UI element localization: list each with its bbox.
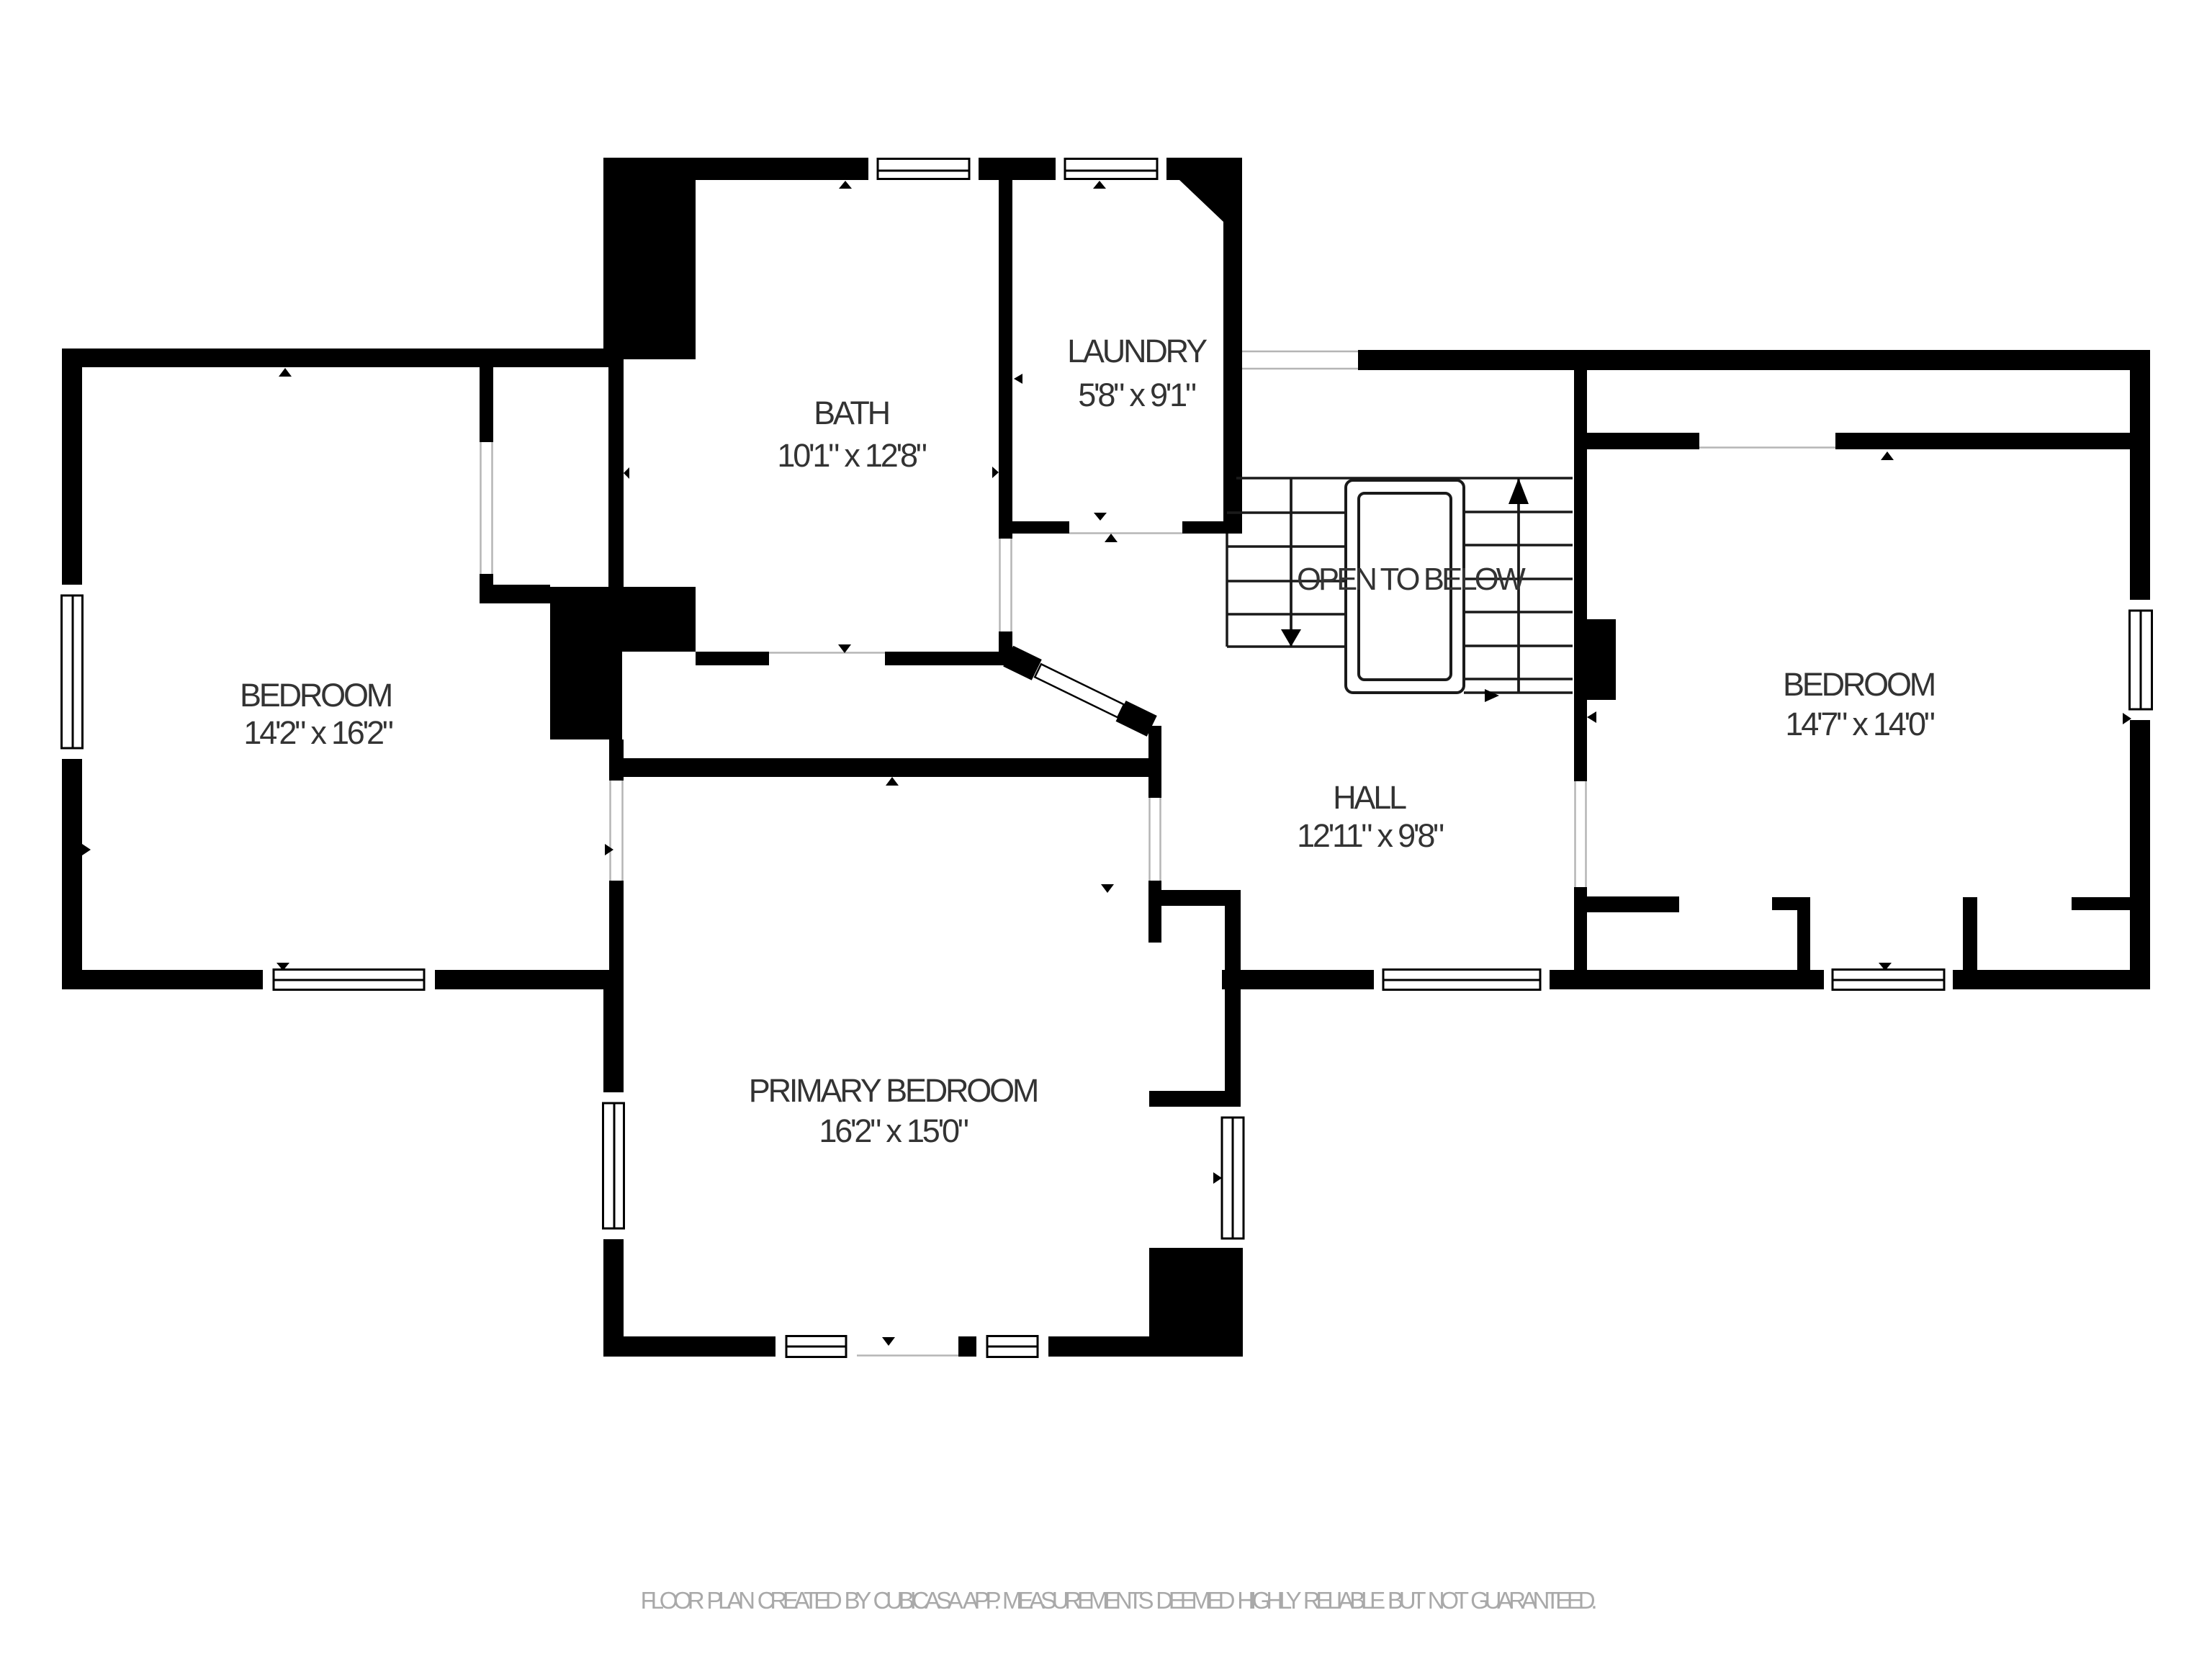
svg-text:BEDROOM: BEDROOM <box>1783 666 1934 703</box>
svg-text:14'7" x 14'0": 14'7" x 14'0" <box>1785 706 1934 742</box>
svg-text:5'8" x 9'1": 5'8" x 9'1" <box>1078 377 1196 413</box>
svg-text:FLOOR PLAN CREATED BY CUBICASA: FLOOR PLAN CREATED BY CUBICASA APP. MEAS… <box>641 1587 1596 1614</box>
svg-text:LAUNDRY: LAUNDRY <box>1067 333 1208 369</box>
svg-text:14'2" x 16'2": 14'2" x 16'2" <box>243 714 392 751</box>
svg-text:16'2" x 15'0": 16'2" x 15'0" <box>819 1112 968 1149</box>
svg-text:OPEN TO BELOW: OPEN TO BELOW <box>1297 562 1526 597</box>
svg-text:HALL: HALL <box>1333 779 1406 816</box>
svg-text:12'11" x 9'8": 12'11" x 9'8" <box>1297 817 1444 854</box>
svg-text:PRIMARY BEDROOM: PRIMARY BEDROOM <box>749 1072 1037 1109</box>
svg-text:10'1" x 12'8": 10'1" x 12'8" <box>777 437 926 474</box>
svg-text:BEDROOM: BEDROOM <box>240 677 391 714</box>
svg-text:BATH: BATH <box>814 395 889 431</box>
